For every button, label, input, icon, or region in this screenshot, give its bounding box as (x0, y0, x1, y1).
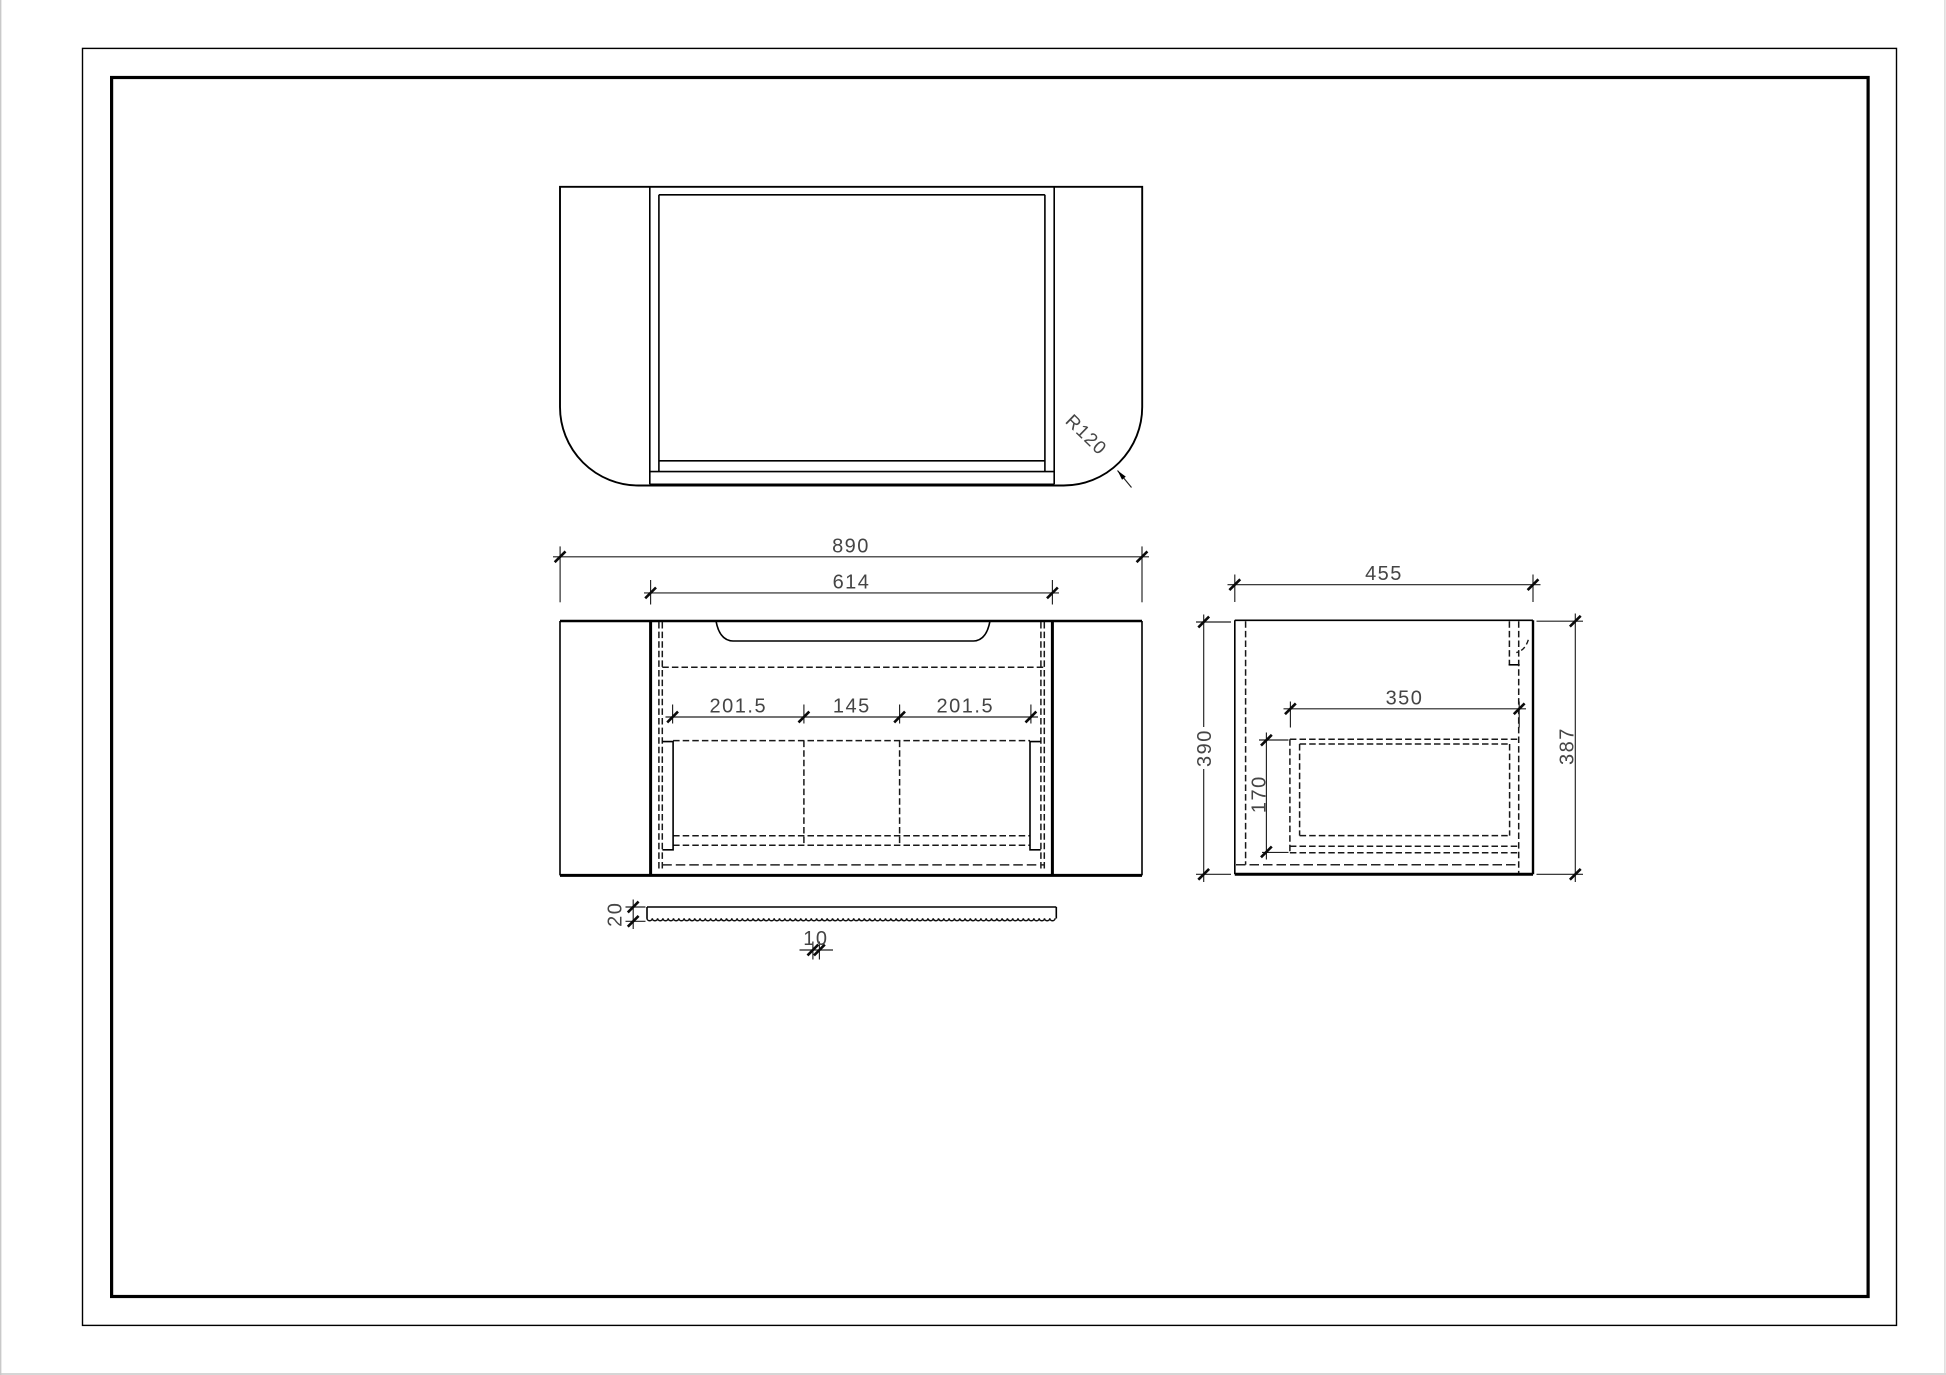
svg-text:145: 145 (833, 696, 871, 718)
svg-text:10: 10 (803, 928, 828, 950)
svg-text:350: 350 (1386, 687, 1424, 709)
svg-text:390: 390 (1194, 729, 1216, 767)
svg-text:890: 890 (832, 535, 870, 557)
svg-text:201.5: 201.5 (710, 696, 768, 718)
svg-text:614: 614 (833, 571, 871, 593)
svg-text:455: 455 (1365, 563, 1403, 585)
svg-text:201.5: 201.5 (937, 696, 995, 718)
svg-text:170: 170 (1248, 775, 1270, 813)
svg-text:387: 387 (1556, 727, 1578, 765)
svg-text:20: 20 (605, 902, 627, 927)
